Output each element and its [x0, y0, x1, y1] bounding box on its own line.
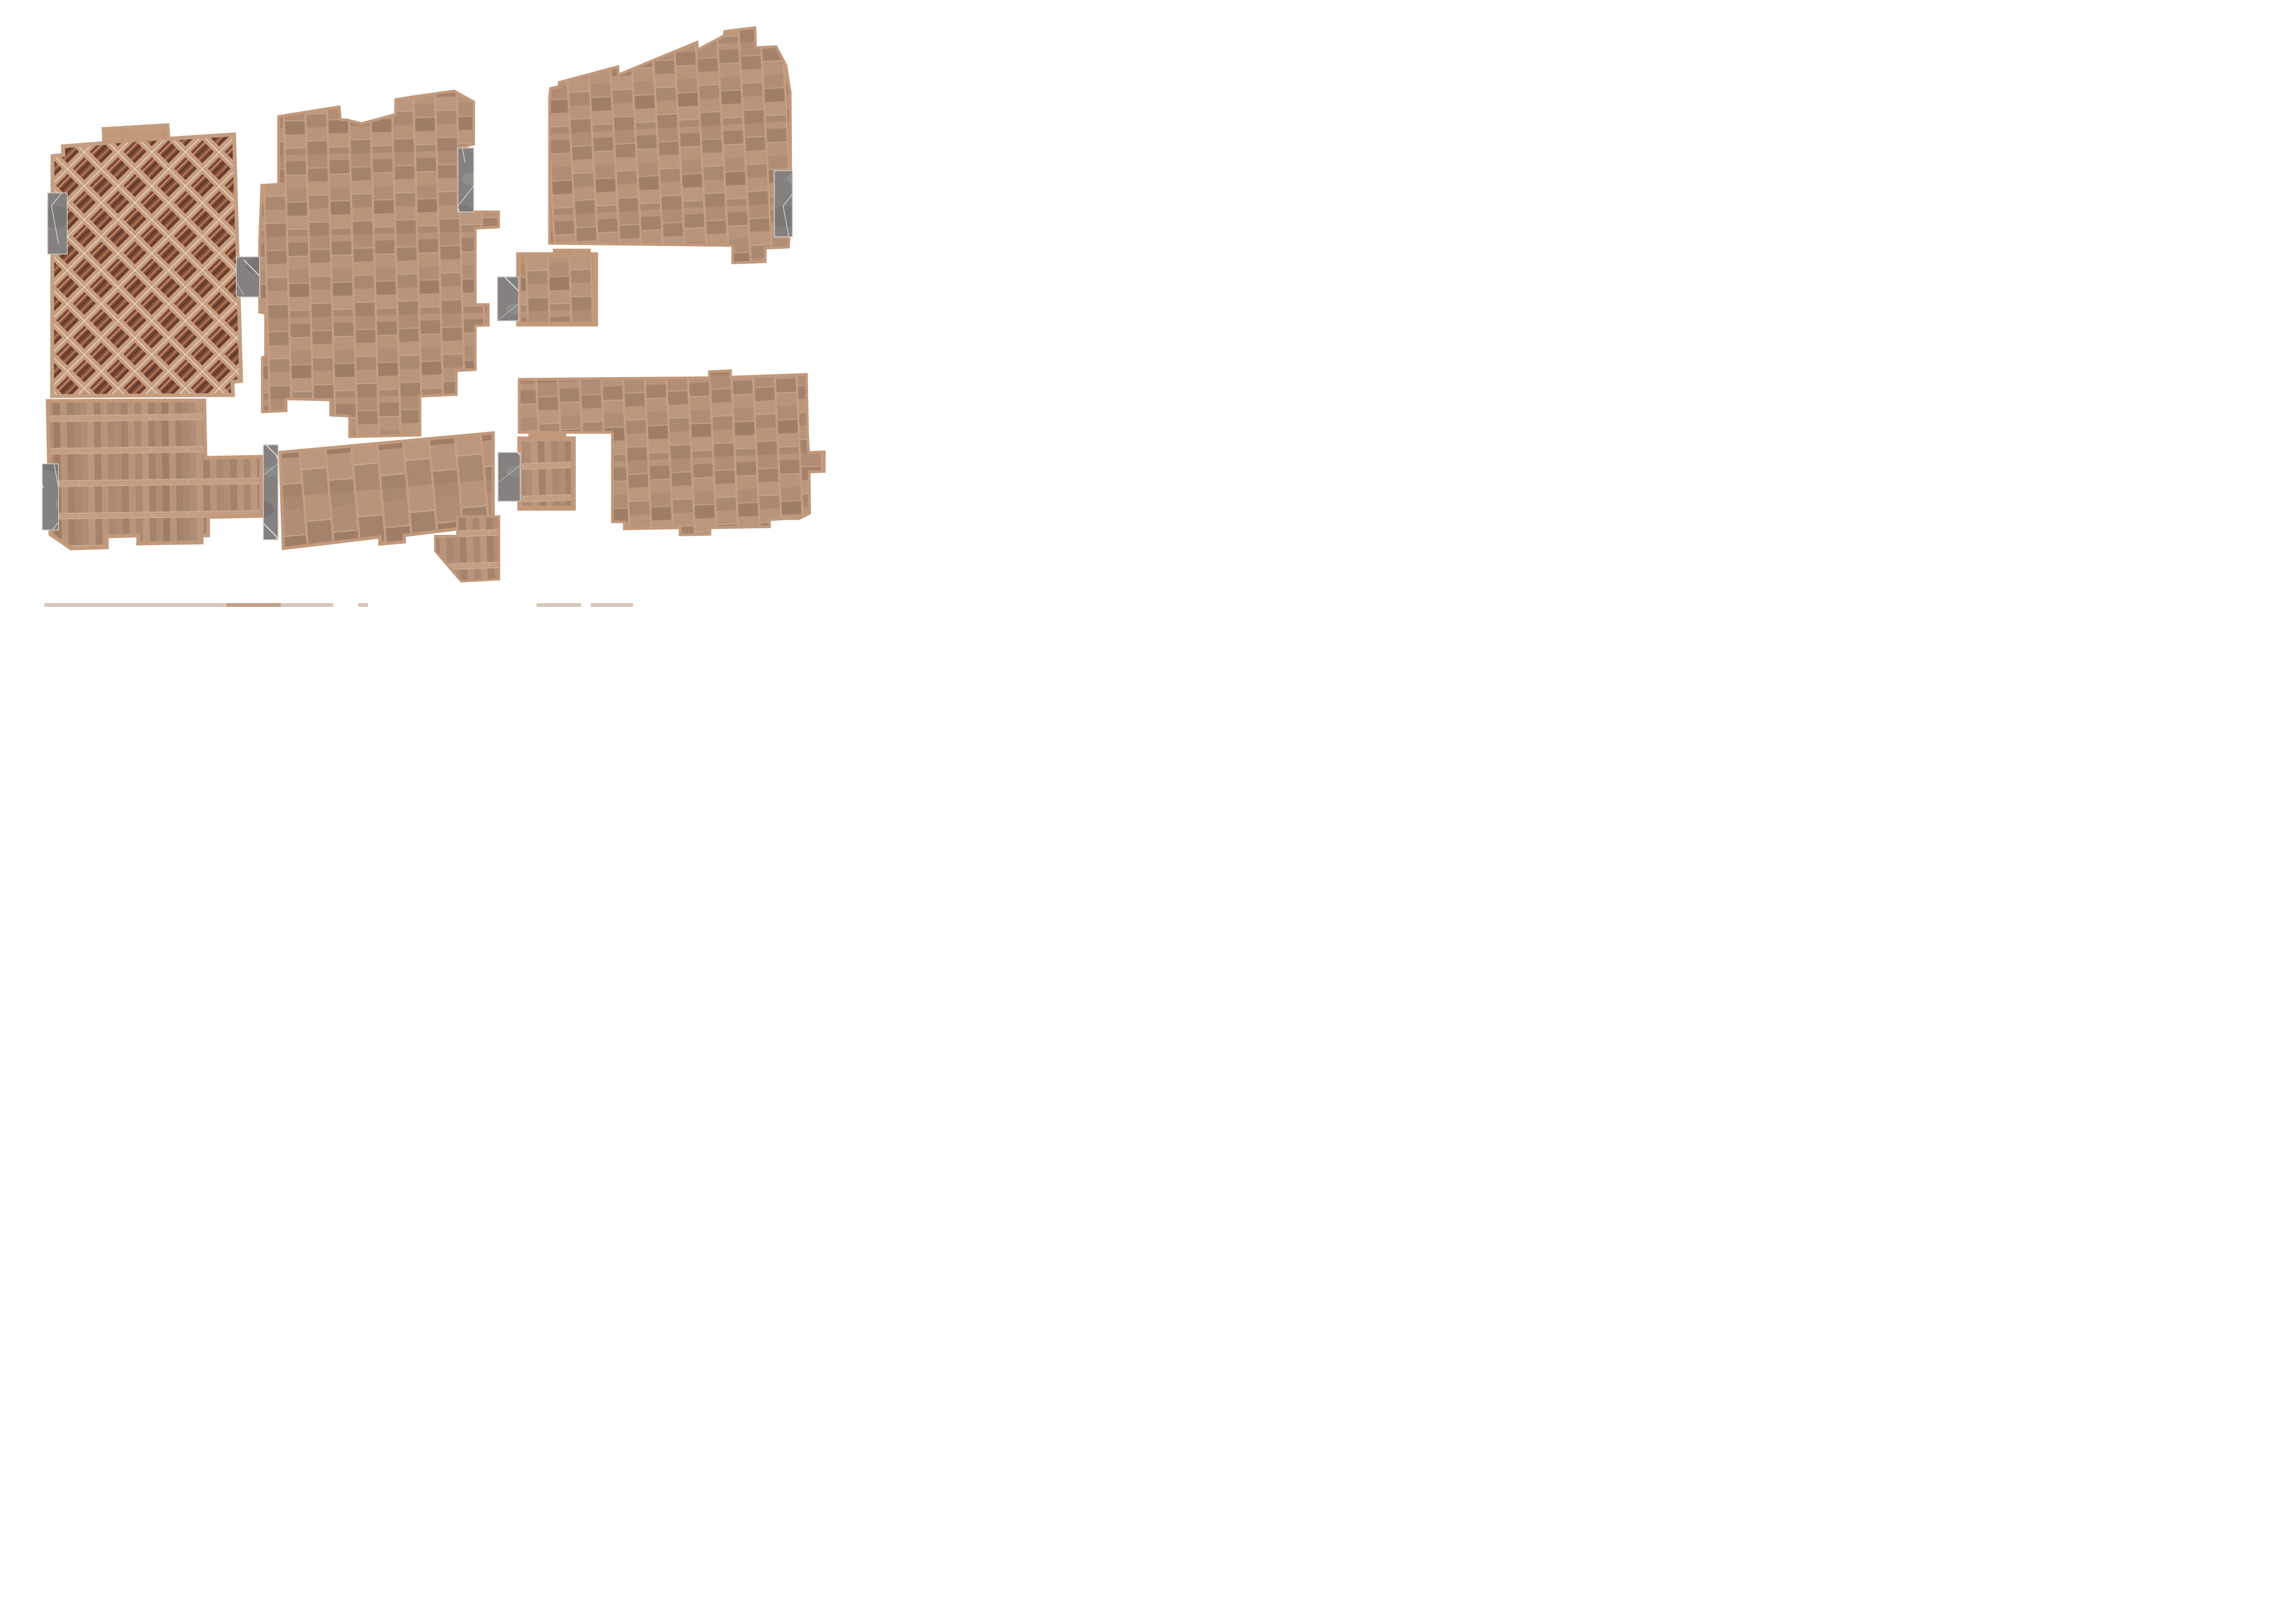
room-top-right-hall [550, 28, 791, 263]
edge-sliver-4 [591, 603, 633, 607]
marble-threshold-bottom-room [498, 452, 520, 501]
edge-sliver-3 [537, 603, 581, 607]
plain-tab-bottom-room [528, 434, 566, 439]
marble-threshold-lattice-hall [236, 257, 260, 297]
small-room-center [519, 255, 596, 324]
marble-threshold-topright-edge [774, 171, 792, 237]
floor-plan-stage [0, 0, 850, 607]
room-lattice-parquet [52, 125, 241, 396]
edge-sliver-1 [44, 603, 333, 607]
marble-threshold-corridor-left [263, 445, 278, 540]
marble-threshold-center-room [498, 277, 519, 321]
floor-plan-canvas [0, 0, 850, 607]
small-room-bottom [520, 439, 573, 508]
edge-sliver-2 [358, 603, 368, 607]
edge-sliver-1b [227, 603, 281, 607]
marble-threshold-planks-left [42, 464, 59, 530]
marble-threshold-lattice-left [48, 193, 67, 254]
room-main-hall [260, 91, 499, 437]
room-plank-rows [48, 400, 261, 548]
plain-tab-center-room [553, 249, 591, 255]
floor-regions-layer [42, 28, 824, 581]
bottom-edge-slivers-layer [44, 603, 633, 607]
marble-threshold-hall-right [458, 148, 474, 212]
